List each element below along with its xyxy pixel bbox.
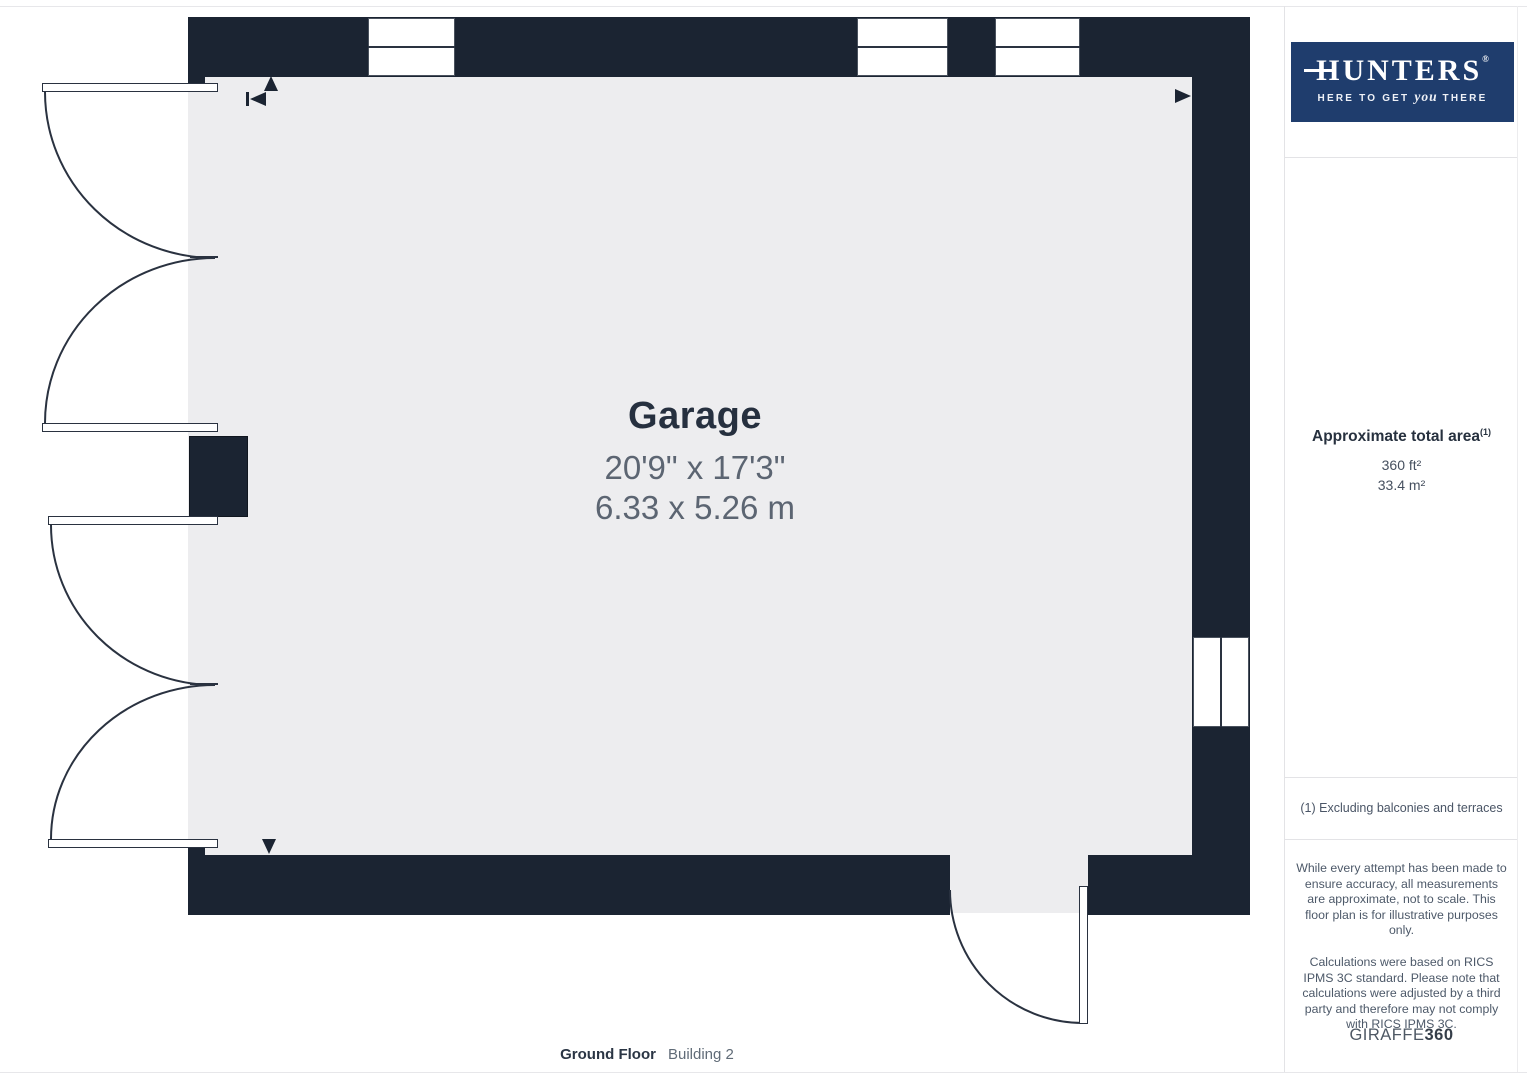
giraffe360-suffix: 360	[1424, 1026, 1453, 1044]
giraffe360-logo: GIRAFFE360	[1285, 1026, 1518, 1045]
arrow-left-stop-bar	[246, 92, 249, 106]
window-mullion	[368, 46, 455, 48]
door-leaf-upper-double-top	[42, 83, 218, 92]
tagline-prefix: HERE TO GET	[1318, 93, 1415, 104]
door-leaf-lower-double-bottom	[48, 839, 218, 848]
floor-name: Ground Floor	[560, 1046, 656, 1063]
area-title-text: Approximate total area	[1312, 428, 1480, 445]
page-top-border	[0, 6, 1527, 7]
tagline-suffix: THERE	[1438, 93, 1488, 104]
sidebar-left-border	[1284, 6, 1285, 1072]
window-top-2	[857, 18, 948, 76]
wall-bottom-right	[1088, 855, 1250, 915]
window-right	[1193, 637, 1249, 727]
sidebar-divider-2	[1285, 777, 1517, 778]
floor-caption: Ground FloorBuilding 2	[560, 1046, 734, 1063]
arrow-left-icon	[250, 92, 266, 106]
window-mullion	[1220, 637, 1222, 727]
window-top-3	[995, 18, 1080, 76]
door-leaf-upper-double-bottom	[42, 423, 218, 432]
page-bottom-border	[0, 1072, 1527, 1073]
area-metric: 33.4 m²	[1285, 475, 1518, 495]
wall-pier-left	[189, 436, 248, 517]
room-dimensions-imperial: 20'9" x 17'3"	[595, 451, 795, 484]
hunters-brand-text: HUNTERS	[1316, 54, 1482, 87]
area-imperial: 360 ft²	[1285, 455, 1518, 475]
wall-bottom-left	[188, 855, 950, 915]
area-values: 360 ft² 33.4 m²	[1285, 455, 1518, 495]
room-dimensions-metric: 6.33 x 5.26 m	[595, 491, 795, 524]
floorplan-page: Garage 20'9" x 17'3" 6.33 x 5.26 m Groun…	[0, 0, 1527, 1080]
tagline-emphasis: you	[1414, 89, 1437, 104]
arrow-down-icon	[262, 839, 276, 854]
sidebar-divider-3	[1285, 839, 1517, 840]
wall-right	[1192, 17, 1250, 915]
door-opening-recess	[950, 855, 1088, 913]
building-name: Building 2	[668, 1046, 734, 1063]
disclaimer-block: While every attempt has been made to ens…	[1296, 861, 1507, 1033]
room-label: Garage 20'9" x 17'3" 6.33 x 5.26 m	[595, 396, 795, 524]
window-mullion	[995, 46, 1080, 48]
sidebar-right-border	[1517, 6, 1518, 1072]
hunters-wordmark: HUNTERS®	[1316, 54, 1489, 87]
room-name: Garage	[595, 396, 795, 438]
window-mullion	[857, 46, 948, 48]
hunters-tagline: HERE TO GET you THERE	[1291, 89, 1514, 105]
area-footnote: (1) Excluding balconies and terraces	[1285, 801, 1518, 815]
disclaimer-paragraph-1: While every attempt has been made to ens…	[1296, 861, 1507, 939]
wall-step-bottom-left	[188, 847, 205, 855]
arrow-right-icon	[1175, 89, 1191, 103]
arrow-up-icon	[264, 76, 278, 91]
registered-trademark-icon: ®	[1482, 54, 1489, 64]
area-title: Approximate total area(1)	[1285, 427, 1518, 446]
wall-top	[188, 17, 1250, 77]
door-leaf-lower-double-top	[48, 516, 218, 525]
sidebar-divider-1	[1285, 157, 1517, 158]
window-top-1	[368, 18, 455, 76]
disclaimer-paragraph-2: Calculations were based on RICS IPMS 3C …	[1296, 955, 1507, 1033]
area-summary: Approximate total area(1) 360 ft² 33.4 m…	[1285, 427, 1518, 495]
hunters-crossbar-decoration	[1304, 69, 1336, 72]
giraffe360-name: GIRAFFE	[1349, 1026, 1424, 1044]
area-footnote-marker: (1)	[1480, 427, 1491, 437]
door-leaf-bottom-right	[1079, 886, 1088, 1024]
door-meeting-tick-lower	[190, 683, 218, 685]
hunters-logo: HUNTERS® HERE TO GET you THERE	[1291, 42, 1514, 122]
door-meeting-tick-upper	[190, 256, 218, 258]
